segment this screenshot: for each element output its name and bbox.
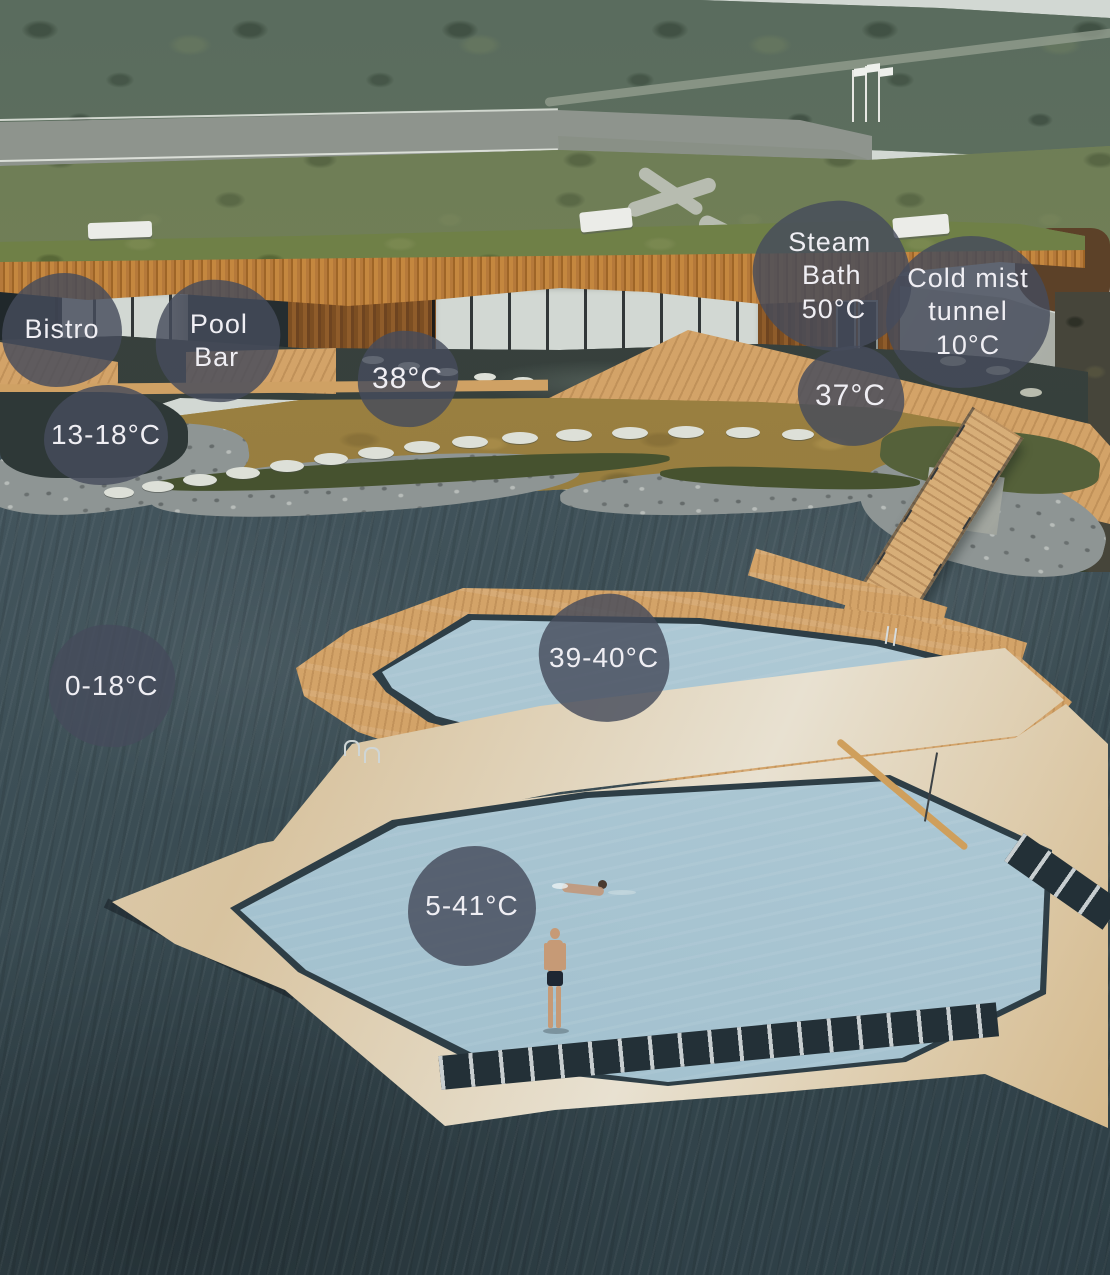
badge-label: 5-41°C <box>425 889 518 924</box>
badge-label: Steam <box>789 226 872 259</box>
annotation-badges: BistroPoolBarSteamBath50°CCold misttunne… <box>0 0 1110 1275</box>
badge-label: 38°C <box>372 360 443 397</box>
badge-temp-37: 37°C <box>795 343 906 448</box>
badge-label: 0-18°C <box>65 669 158 704</box>
badge-temp-38: 38°C <box>356 328 461 429</box>
badge-bistro: Bistro <box>2 273 122 387</box>
badge-label: Cold mist <box>907 262 1029 295</box>
badge-label: Bistro <box>24 313 99 346</box>
badge-pool-bar: PoolBar <box>153 277 283 405</box>
badge-label: Pool <box>190 308 248 341</box>
badge-label: tunnel <box>928 295 1008 328</box>
badge-label: Bath <box>802 259 862 292</box>
spa-aerial-photo: BistroPoolBarSteamBath50°CCold misttunne… <box>0 0 1110 1275</box>
badge-label: Bar <box>195 341 240 374</box>
badge-label: 50°C <box>802 293 866 326</box>
badge-label: 37°C <box>815 377 886 414</box>
badge-temp-0-18: 0-18°C <box>46 622 178 750</box>
badge-temp-5-41: 5-41°C <box>408 846 536 966</box>
badge-temp-13-18: 13-18°C <box>44 385 168 485</box>
badge-label: 39-40°C <box>549 641 659 676</box>
badge-label: 13-18°C <box>51 418 161 453</box>
badge-temp-39-40: 39-40°C <box>536 591 673 726</box>
badge-cold-mist-tunnel: Cold misttunnel10°C <box>886 236 1050 388</box>
badge-label: 10°C <box>936 329 1000 362</box>
